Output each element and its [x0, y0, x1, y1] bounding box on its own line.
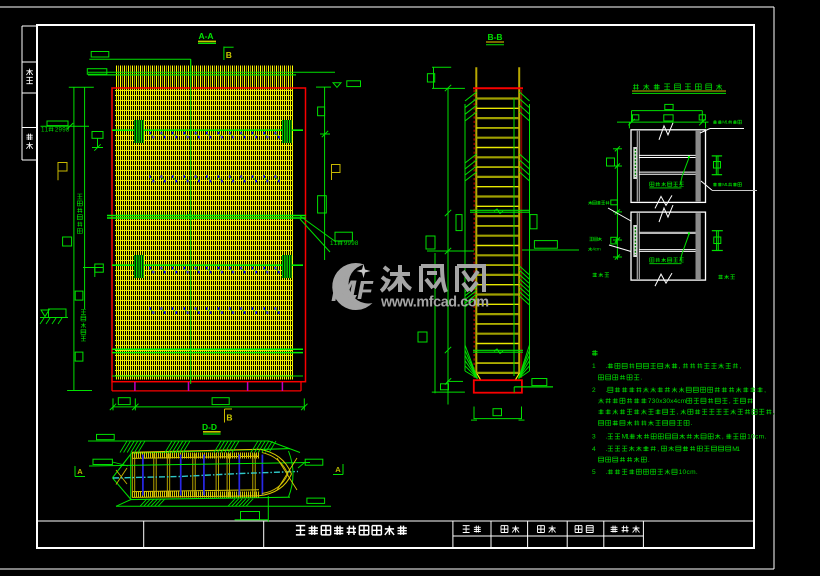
svg-text:,: , [739, 363, 741, 370]
svg-text:,: , [773, 409, 775, 416]
svg-text:.: . [648, 457, 650, 464]
svg-text:4cm: 4cm [592, 247, 600, 253]
svg-text:10cm.: 10cm. [747, 434, 766, 441]
svg-text:M1: M1 [722, 120, 728, 126]
svg-text:10cm.: 10cm. [679, 469, 698, 476]
svg-text:B-B: B-B [487, 32, 502, 42]
svg-text:F: F [357, 275, 374, 305]
svg-text:,: , [657, 446, 659, 453]
svg-text:B: B [226, 50, 232, 60]
svg-text:.: . [691, 420, 693, 427]
svg-text:www.mfcad.com: www.mfcad.com [380, 295, 489, 311]
svg-text:,: , [722, 434, 724, 441]
svg-text:A: A [335, 465, 341, 474]
svg-text:,: , [679, 363, 681, 370]
svg-text:M1: M1 [732, 446, 740, 453]
svg-text:,: , [764, 387, 766, 394]
svg-text:M1: M1 [722, 182, 728, 188]
svg-text:2998: 2998 [55, 126, 70, 133]
svg-text:11: 11 [330, 240, 338, 247]
svg-text:A: A [77, 467, 83, 476]
svg-text:B: B [226, 413, 232, 423]
svg-text:M1: M1 [622, 434, 630, 441]
svg-text:.: . [641, 375, 643, 382]
svg-text:D-D: D-D [202, 422, 217, 432]
svg-text:9998: 9998 [344, 240, 359, 247]
svg-text:11: 11 [41, 126, 49, 133]
svg-text:730x30x4cm: 730x30x4cm [648, 398, 687, 405]
svg-text:,: , [676, 409, 678, 416]
svg-text:,: , [729, 398, 731, 405]
svg-text:A-A: A-A [198, 31, 213, 41]
